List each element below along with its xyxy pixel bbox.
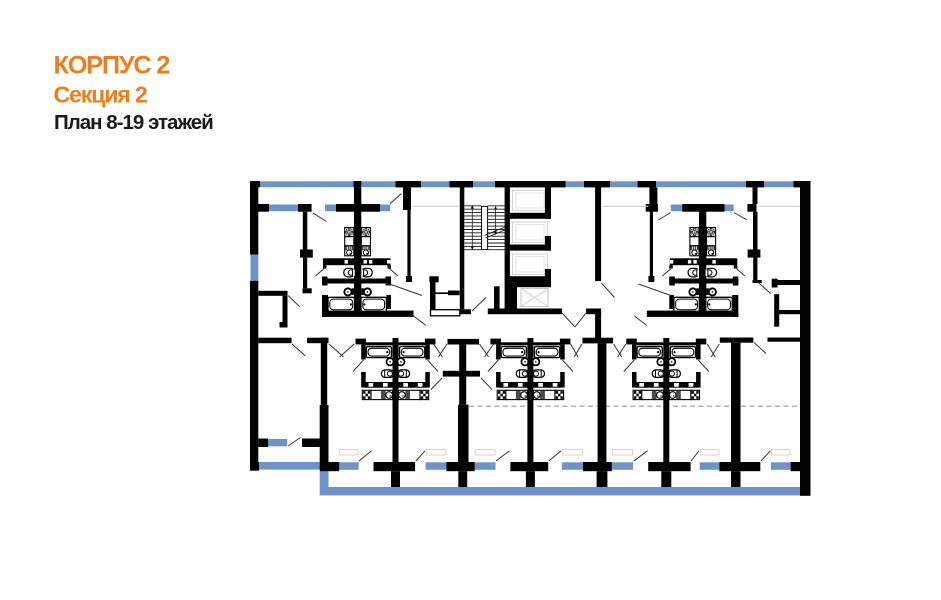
svg-text:Секция 2: Секция 2 [54,82,147,108]
svg-text:КОРПУС 2: КОРПУС 2 [54,52,171,80]
svg-text:План 8-19 этажей: План 8-19 этажей [54,111,213,134]
